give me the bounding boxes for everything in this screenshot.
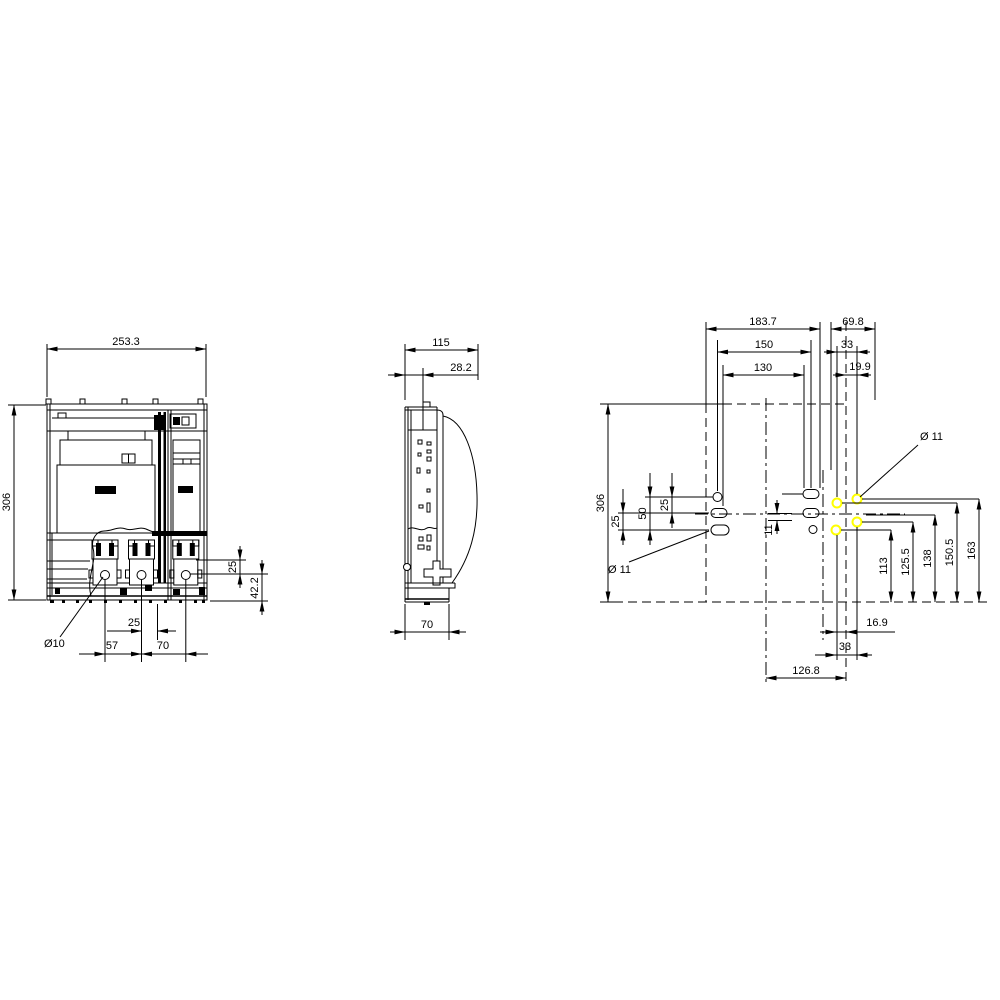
clamp-detail: [424, 561, 451, 585]
handle-profile: [443, 416, 477, 583]
drill-slot: [711, 525, 729, 535]
dim-side-overall-depth: 115: [432, 337, 450, 349]
dim-plan-pitch-total: 50: [637, 507, 649, 519]
side-view: 115 28.2 70: [388, 337, 478, 640]
side-hole: [404, 564, 411, 571]
dim-plan-bottom-c: 126.8: [792, 665, 820, 677]
dim-plan-bottom-b: 33: [839, 641, 851, 653]
front-view: 253.3 306 25 42.2 25 57 70 Ø10: [1, 336, 268, 662]
dim-front-hole-center-offset: 25: [128, 617, 140, 629]
side-view-dimensions: 115 28.2 70: [388, 337, 478, 640]
front-view-body: [46, 399, 207, 603]
pole-terminal-1: [89, 540, 121, 585]
dim-plan-width-a: 183.7: [749, 316, 777, 328]
dim-front-hole-diameter: Ø10: [44, 638, 65, 650]
break-line: [408, 527, 437, 529]
drill-slot: [803, 509, 819, 518]
highlighted-hole: [853, 495, 862, 504]
dim-plan-height-c: 138: [922, 549, 934, 567]
drill-hole: [713, 493, 722, 502]
drill-slot: [711, 509, 727, 518]
dim-plan-width-d: 33: [841, 339, 853, 351]
highlighted-hole: [853, 518, 862, 527]
dim-front-pole-pitch-b: 70: [157, 640, 169, 652]
highlighted-hole: [833, 499, 842, 508]
drill-slot: [803, 490, 819, 499]
technical-drawing: 253.3 306 25 42.2 25 57 70 Ø10: [0, 0, 1000, 1000]
dim-side-upper-depth: 28.2: [450, 362, 471, 374]
mounting-hole: [137, 571, 146, 580]
front-view-dimensions: 253.3 306 25 42.2 25 57 70 Ø10: [1, 336, 268, 662]
side-view-body: [404, 402, 478, 605]
drill-plan-dimensions: 306 183.7 69.8 150 33 130 19.9 25 50: [595, 316, 979, 678]
dim-plan-offset-center: 11: [763, 524, 775, 535]
dim-front-overall-width: 253.3: [112, 336, 140, 348]
dim-plan-width-b: 69.8: [842, 316, 863, 328]
dim-front-hole-bottom-offset: 42.2: [249, 577, 261, 598]
drill-hole: [809, 526, 817, 534]
dim-plan-pitch-lower: 25: [610, 515, 622, 527]
leader-line: [60, 577, 103, 637]
mounting-hole: [181, 571, 190, 580]
dim-front-hole-top-offset: 25: [227, 561, 239, 573]
leader-line: [860, 445, 918, 497]
label-plate-left: [95, 486, 116, 494]
dim-plan-width-f: 19.9: [849, 361, 870, 373]
highlighted-hole: [832, 526, 841, 535]
dim-plan-height-b: 125.5: [900, 548, 912, 576]
pole-terminal-3: [170, 540, 202, 585]
side-view-details: [417, 440, 431, 550]
dim-plan-hole-dia-left: Ø 11: [608, 564, 631, 576]
pole-terminal-2: [126, 540, 158, 585]
dim-plan-bottom-a: 16.9: [866, 617, 887, 629]
dim-side-base-depth: 70: [421, 619, 433, 631]
dim-front-pole-pitch-a: 57: [106, 640, 118, 652]
unit-divider: [158, 412, 161, 583]
dim-plan-hole-dia-right: Ø 11: [920, 431, 943, 443]
dim-plan-overall-height: 306: [595, 494, 607, 512]
technical-drawing-page: 253.3 306 25 42.2 25 57 70 Ø10: [0, 0, 1000, 1000]
drill-plan: 306 183.7 69.8 150 33 130 19.9 25 50: [595, 316, 990, 684]
dim-plan-height-d: 150.5: [944, 539, 956, 567]
base-vents: [55, 585, 205, 595]
leader-line: [629, 531, 709, 562]
fuse-cover-left: [57, 465, 155, 533]
dim-plan-height-e: 163: [966, 541, 978, 559]
dim-plan-pitch-upper: 25: [659, 499, 671, 511]
label-plate-right: [178, 486, 193, 493]
dim-front-overall-height: 306: [1, 493, 13, 511]
dim-plan-width-e: 130: [754, 362, 772, 374]
drill-plan-holes: [711, 490, 862, 536]
dim-plan-width-c: 150: [755, 339, 773, 351]
dim-plan-height-a: 113: [878, 557, 890, 575]
